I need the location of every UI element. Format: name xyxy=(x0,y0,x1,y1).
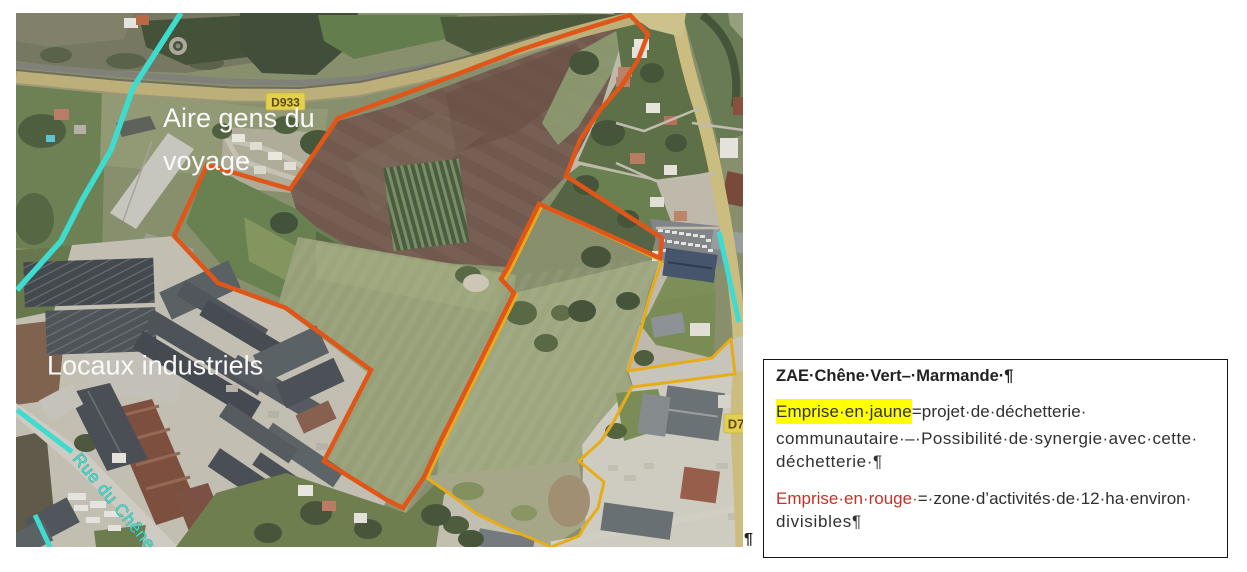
svg-text:Aire gens du: Aire gens du xyxy=(163,103,315,133)
svg-text:Locaux industriels: Locaux industriels xyxy=(47,351,263,381)
svg-text:D7: D7 xyxy=(728,417,743,432)
svg-text:voyage: voyage xyxy=(163,146,250,176)
